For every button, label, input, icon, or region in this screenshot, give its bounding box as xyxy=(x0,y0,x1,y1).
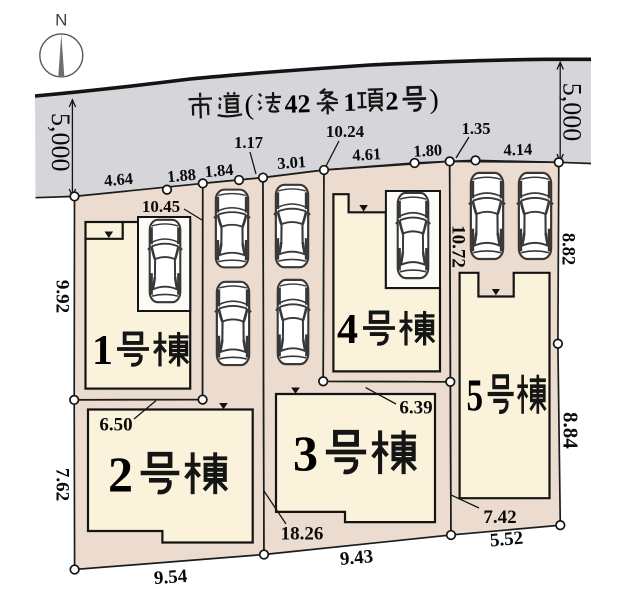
svg-text:9.54: 9.54 xyxy=(153,566,188,589)
svg-text:5.52: 5.52 xyxy=(489,528,524,552)
svg-text:1.84: 1.84 xyxy=(204,160,234,181)
svg-text:1: 1 xyxy=(92,328,113,374)
svg-text:5,000: 5,000 xyxy=(558,83,587,142)
svg-text:1.88: 1.88 xyxy=(166,165,196,186)
svg-text:5,000: 5,000 xyxy=(46,113,75,172)
svg-text:2: 2 xyxy=(108,446,133,502)
svg-text:4: 4 xyxy=(337,307,358,353)
svg-text:9.43: 9.43 xyxy=(339,546,374,570)
svg-text:1: 1 xyxy=(343,88,357,117)
svg-text:1.35: 1.35 xyxy=(462,119,491,138)
svg-text:18.26: 18.26 xyxy=(281,524,324,545)
svg-text:N: N xyxy=(55,11,67,30)
svg-text:4.14: 4.14 xyxy=(503,140,533,160)
svg-text:42: 42 xyxy=(284,89,311,119)
svg-text:6.39: 6.39 xyxy=(399,398,432,419)
svg-text:3.01: 3.01 xyxy=(277,152,307,173)
svg-text:1.80: 1.80 xyxy=(413,140,443,160)
svg-text:4.64: 4.64 xyxy=(103,169,133,190)
svg-text:6.50: 6.50 xyxy=(99,415,132,436)
svg-text:8.82: 8.82 xyxy=(558,233,578,265)
svg-text:7.62: 7.62 xyxy=(52,468,73,501)
svg-text:9.92: 9.92 xyxy=(52,280,73,313)
svg-text:4.61: 4.61 xyxy=(352,144,382,164)
svg-text:): ) xyxy=(429,84,439,115)
svg-text:(: ( xyxy=(244,90,254,121)
svg-text:10.24: 10.24 xyxy=(326,122,365,141)
svg-text:10.72: 10.72 xyxy=(448,225,469,268)
svg-text:10.45: 10.45 xyxy=(142,197,180,216)
svg-text:1.17: 1.17 xyxy=(234,133,263,152)
svg-text:5: 5 xyxy=(466,369,483,421)
svg-text:3: 3 xyxy=(293,425,318,481)
svg-text:8.84: 8.84 xyxy=(559,412,583,449)
svg-text:7.42: 7.42 xyxy=(483,507,516,528)
svg-text:2: 2 xyxy=(385,86,399,115)
